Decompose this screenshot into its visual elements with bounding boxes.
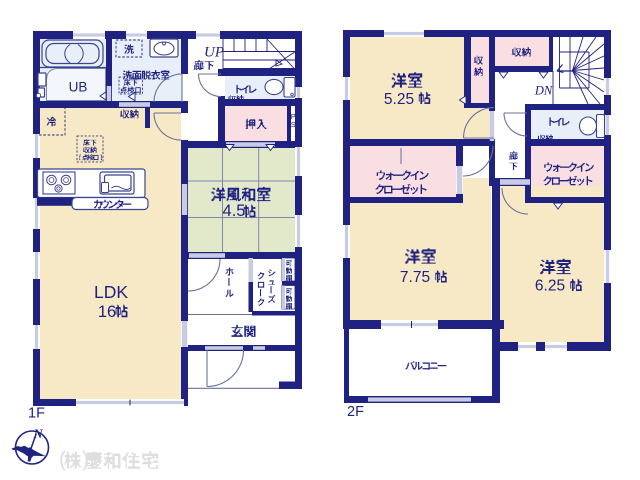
- svg-text:UB: UB: [69, 80, 88, 95]
- svg-text:7.75: 7.75: [400, 269, 430, 286]
- svg-text:4.5: 4.5: [223, 202, 246, 220]
- svg-text:1F: 1F: [28, 406, 45, 422]
- svg-text:N: N: [33, 427, 44, 441]
- svg-text:UP: UP: [204, 45, 224, 61]
- svg-text:5.25: 5.25: [384, 91, 414, 108]
- svg-text:S: S: [291, 120, 296, 129]
- svg-text:2F: 2F: [347, 404, 364, 420]
- svg-text:(: (: [59, 448, 66, 471]
- svg-text:6.25: 6.25: [535, 278, 565, 295]
- svg-text:DN: DN: [534, 84, 553, 98]
- svg-text:LDK: LDK: [94, 282, 128, 302]
- svg-text:16: 16: [98, 303, 116, 321]
